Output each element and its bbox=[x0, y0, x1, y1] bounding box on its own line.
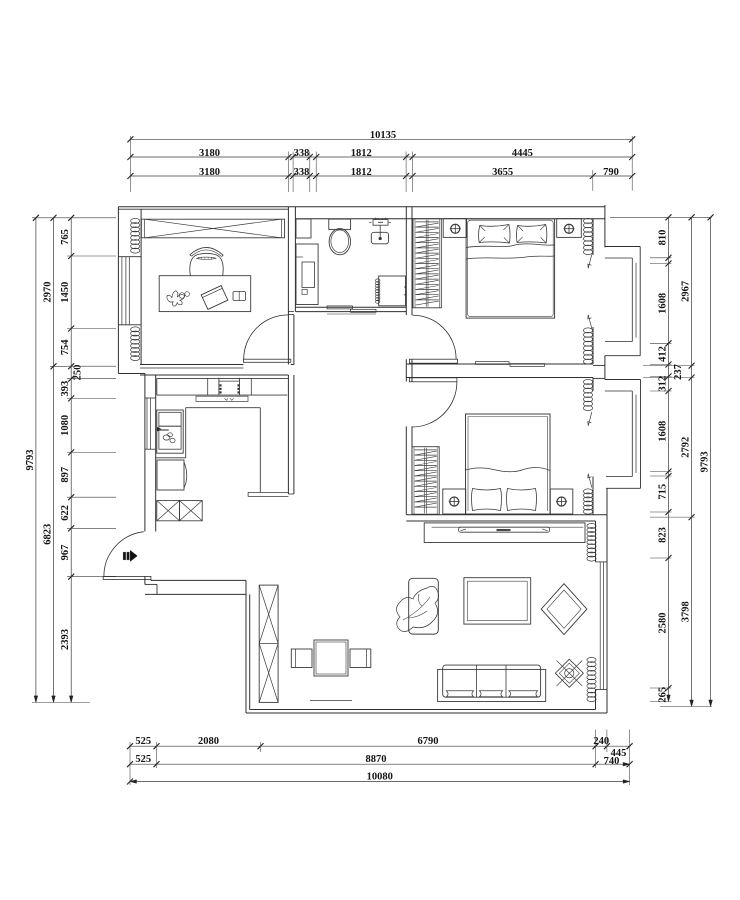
svg-text:823: 823 bbox=[658, 527, 669, 543]
svg-text:3798: 3798 bbox=[681, 601, 692, 622]
svg-text:790: 790 bbox=[603, 167, 619, 178]
svg-text:10080: 10080 bbox=[367, 771, 393, 782]
svg-text:1450: 1450 bbox=[60, 282, 71, 303]
svg-text:240: 240 bbox=[593, 736, 609, 747]
svg-text:525: 525 bbox=[135, 736, 151, 747]
svg-text:250: 250 bbox=[73, 365, 84, 381]
svg-text:765: 765 bbox=[60, 229, 71, 245]
svg-text:1080: 1080 bbox=[60, 415, 71, 436]
svg-text:265: 265 bbox=[658, 687, 669, 703]
svg-text:525: 525 bbox=[135, 754, 151, 765]
svg-text:6790: 6790 bbox=[418, 736, 439, 747]
svg-text:10135: 10135 bbox=[370, 130, 396, 141]
svg-text:338: 338 bbox=[294, 167, 310, 178]
svg-text:237: 237 bbox=[673, 364, 684, 380]
svg-text:2580: 2580 bbox=[658, 613, 669, 634]
svg-text:8870: 8870 bbox=[366, 754, 387, 765]
svg-text:393: 393 bbox=[60, 381, 71, 397]
svg-text:4445: 4445 bbox=[512, 148, 533, 159]
svg-text:754: 754 bbox=[60, 339, 71, 356]
svg-text:6823: 6823 bbox=[43, 524, 54, 545]
svg-text:810: 810 bbox=[658, 230, 669, 246]
svg-text:1608: 1608 bbox=[658, 421, 669, 442]
svg-text:740: 740 bbox=[604, 756, 620, 767]
svg-text:3655: 3655 bbox=[492, 167, 513, 178]
svg-text:9793: 9793 bbox=[25, 450, 36, 471]
svg-text:2393: 2393 bbox=[60, 629, 71, 650]
svg-text:622: 622 bbox=[60, 505, 71, 521]
svg-text:2792: 2792 bbox=[681, 437, 692, 458]
svg-text:312: 312 bbox=[658, 376, 669, 392]
svg-text:2970: 2970 bbox=[43, 282, 54, 303]
svg-text:9793: 9793 bbox=[700, 451, 711, 472]
svg-text:1608: 1608 bbox=[658, 293, 669, 314]
svg-text:967: 967 bbox=[60, 545, 71, 561]
svg-text:2967: 2967 bbox=[681, 281, 692, 302]
svg-text:715: 715 bbox=[658, 484, 669, 500]
svg-text:412: 412 bbox=[658, 346, 669, 362]
svg-text:1812: 1812 bbox=[351, 148, 372, 159]
svg-text:2080: 2080 bbox=[198, 736, 219, 747]
svg-text:3180: 3180 bbox=[199, 167, 220, 178]
svg-text:897: 897 bbox=[60, 467, 71, 483]
svg-text:3180: 3180 bbox=[199, 148, 220, 159]
svg-text:1812: 1812 bbox=[351, 167, 372, 178]
svg-text:338: 338 bbox=[294, 148, 310, 159]
